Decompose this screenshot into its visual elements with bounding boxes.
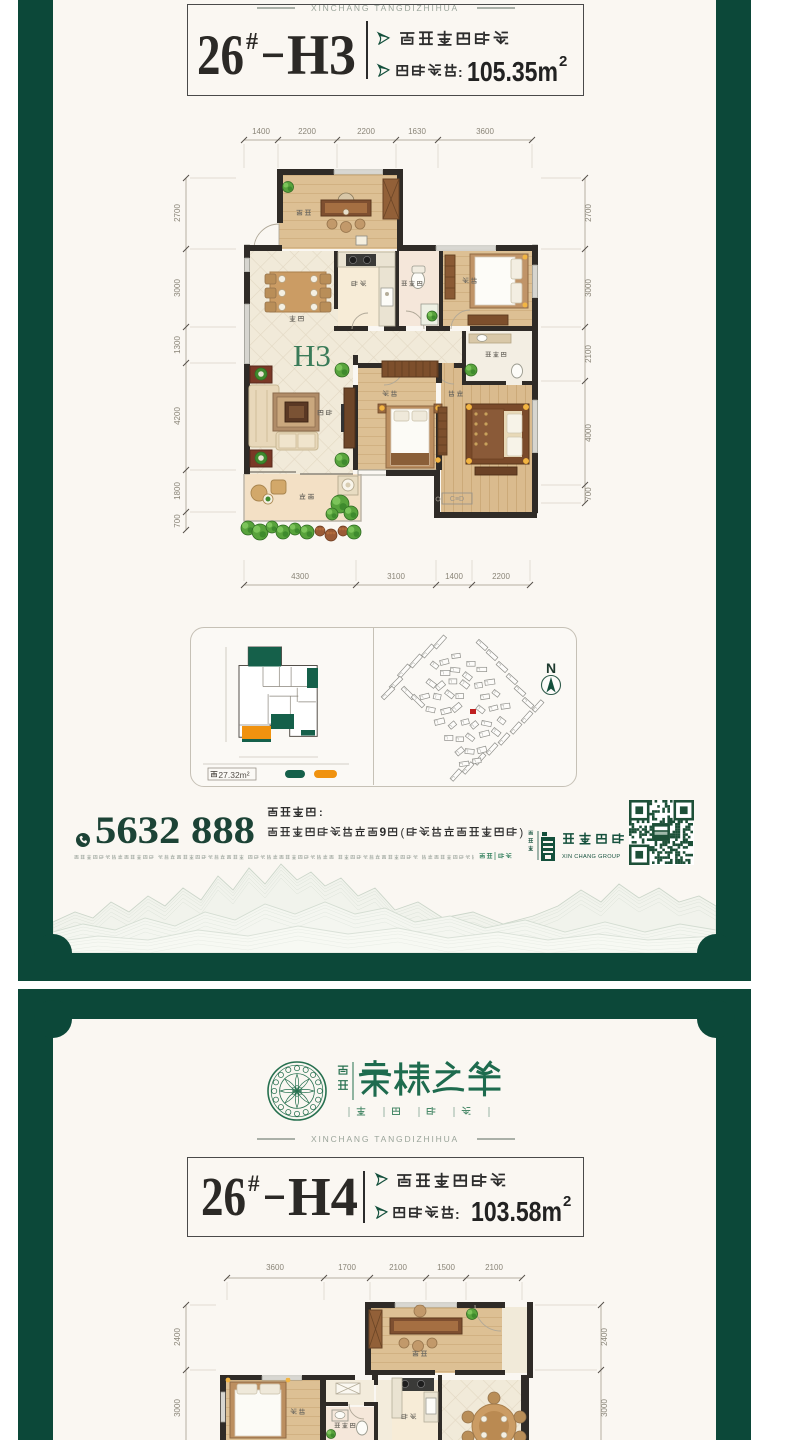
svg-text:2400: 2400	[600, 1328, 609, 1346]
svg-text:1700: 1700	[338, 1263, 356, 1272]
svg-text:H3: H3	[293, 338, 331, 373]
svg-text:2200: 2200	[298, 127, 316, 136]
svg-text:H3: H3	[287, 24, 356, 87]
svg-text:3000: 3000	[173, 1399, 182, 1417]
svg-text:3600: 3600	[476, 127, 494, 136]
svg-text:2700: 2700	[173, 204, 182, 222]
svg-text:2: 2	[563, 1193, 571, 1210]
svg-text:3000: 3000	[584, 279, 593, 297]
svg-text:N: N	[546, 660, 556, 676]
svg-text:3000: 3000	[173, 279, 182, 297]
svg-text:2100: 2100	[485, 1263, 503, 1272]
svg-text::: :	[455, 1206, 460, 1222]
svg-text::: :	[319, 807, 323, 819]
svg-text:1400: 1400	[445, 572, 463, 581]
svg-text:2200: 2200	[492, 572, 510, 581]
svg-text:C≡D: C≡D	[450, 496, 464, 503]
svg-text:4200: 4200	[173, 407, 182, 425]
svg-text:2200: 2200	[357, 127, 375, 136]
svg-text:#: #	[246, 29, 258, 55]
svg-text:1500: 1500	[437, 1263, 455, 1272]
svg-text:5632 888: 5632 888	[95, 809, 255, 850]
svg-text:700: 700	[173, 514, 182, 528]
svg-text:): )	[520, 827, 524, 839]
svg-text:1800: 1800	[173, 482, 182, 500]
svg-text:2100: 2100	[389, 1263, 407, 1272]
svg-text:700: 700	[584, 487, 593, 501]
svg-text:3600: 3600	[266, 1263, 284, 1272]
svg-text:2400: 2400	[173, 1328, 182, 1346]
svg-text:3000: 3000	[600, 1399, 609, 1417]
svg-text:103.58m: 103.58m	[471, 1196, 562, 1227]
svg-text:(: (	[401, 827, 405, 839]
svg-text:27.32m²: 27.32m²	[218, 770, 249, 780]
svg-text:9: 9	[380, 825, 387, 839]
svg-text:26: 26	[201, 1166, 246, 1227]
svg-text:2100: 2100	[584, 345, 593, 363]
svg-text:#: #	[248, 1171, 260, 1196]
svg-text:2700: 2700	[584, 204, 593, 222]
svg-text:26: 26	[197, 24, 244, 87]
svg-text:1300: 1300	[173, 336, 182, 354]
svg-text:4300: 4300	[291, 572, 309, 581]
svg-text:H4: H4	[288, 1166, 358, 1227]
svg-text:1630: 1630	[408, 127, 426, 136]
svg-text:1400: 1400	[252, 127, 270, 136]
svg-text:XIN CHANG GROUP: XIN CHANG GROUP	[562, 854, 620, 860]
svg-text:3100: 3100	[387, 572, 405, 581]
svg-text:2: 2	[559, 53, 567, 70]
svg-text:4000: 4000	[584, 424, 593, 442]
svg-text:105.35m: 105.35m	[467, 56, 558, 87]
